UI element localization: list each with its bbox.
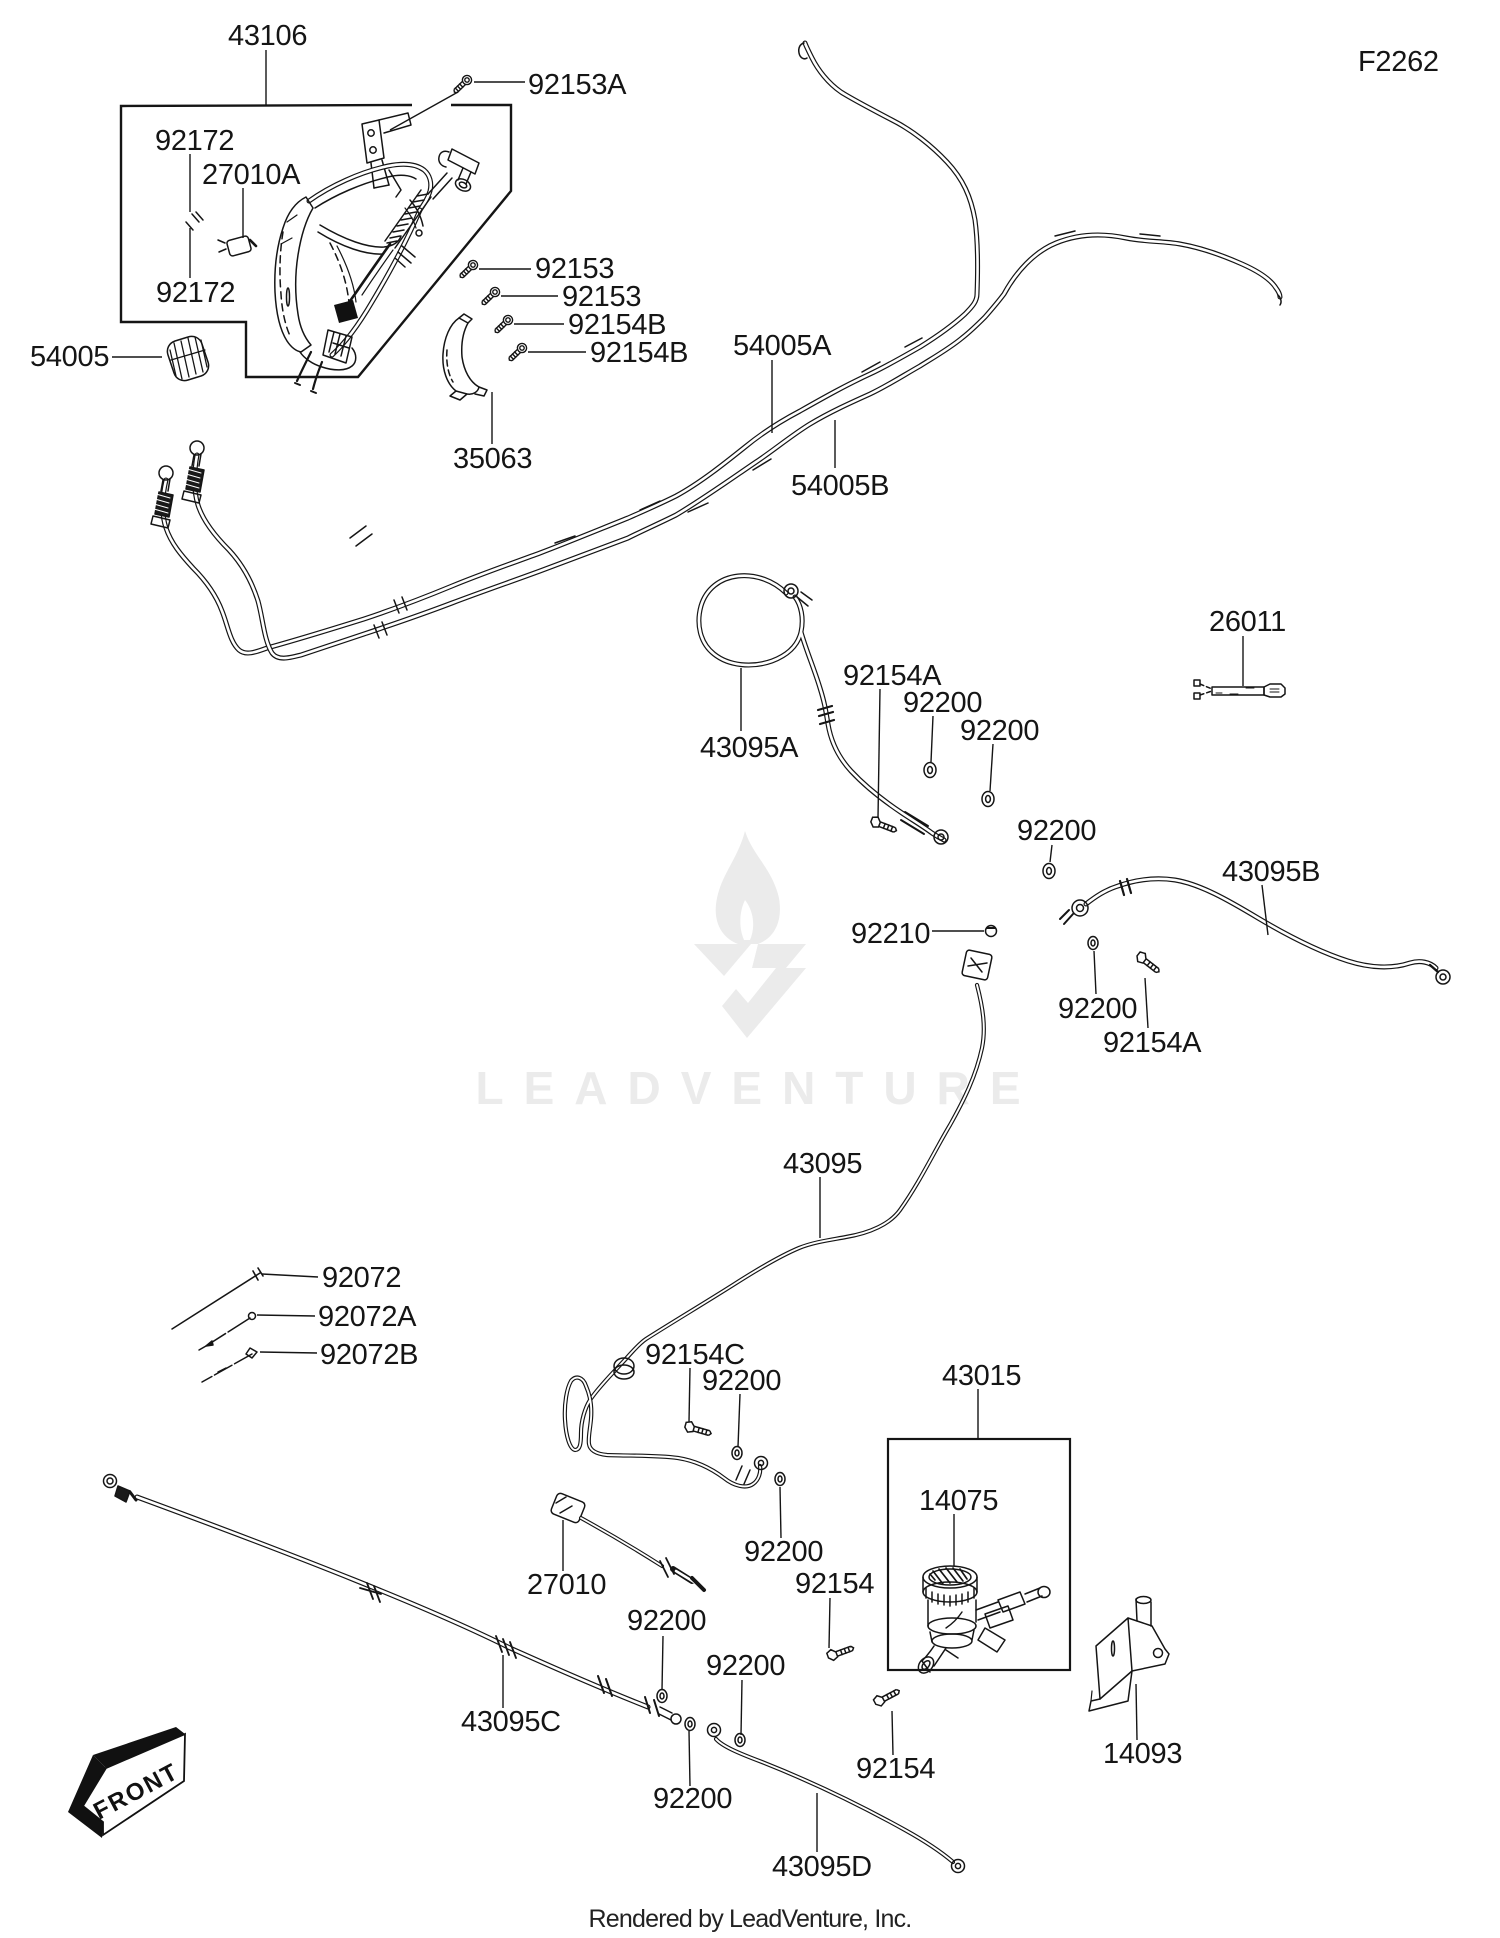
svg-text:92172: 92172	[155, 125, 234, 157]
svg-text:92154: 92154	[795, 1568, 874, 1600]
svg-text:92200: 92200	[627, 1605, 706, 1637]
svg-text:92072: 92072	[322, 1262, 401, 1294]
svg-text:92072B: 92072B	[320, 1339, 418, 1371]
svg-text:43095: 43095	[783, 1148, 862, 1180]
svg-text:LEADVENTURE: LEADVENTURE	[475, 1062, 1040, 1114]
svg-text:92200: 92200	[706, 1650, 785, 1682]
svg-text:92153A: 92153A	[528, 69, 627, 101]
svg-text:92154A: 92154A	[1103, 1027, 1202, 1059]
svg-text:54005B: 54005B	[791, 470, 889, 502]
svg-text:26011: 26011	[1209, 606, 1286, 638]
svg-text:54005: 54005	[30, 341, 109, 373]
svg-text:Rendered by LeadVenture, Inc.: Rendered by LeadVenture, Inc.	[589, 1905, 912, 1933]
svg-text:27010: 27010	[527, 1569, 606, 1601]
svg-text:92154: 92154	[856, 1753, 935, 1785]
svg-text:92200: 92200	[1058, 993, 1137, 1025]
svg-text:43095D: 43095D	[772, 1851, 872, 1883]
svg-text:92200: 92200	[960, 715, 1039, 747]
svg-text:43095A: 43095A	[700, 732, 799, 764]
svg-text:43095B: 43095B	[1222, 856, 1320, 888]
svg-text:54005A: 54005A	[733, 330, 832, 362]
svg-text:14093: 14093	[1103, 1738, 1182, 1770]
svg-text:92072A: 92072A	[318, 1301, 417, 1333]
svg-text:43106: 43106	[228, 20, 307, 52]
svg-text:14075: 14075	[919, 1485, 998, 1517]
svg-text:92200: 92200	[702, 1365, 781, 1397]
svg-text:27010A: 27010A	[202, 159, 301, 191]
svg-text:35063: 35063	[453, 443, 532, 475]
svg-text:92172: 92172	[156, 277, 235, 309]
svg-text:43015: 43015	[942, 1360, 1021, 1392]
svg-text:92210: 92210	[851, 918, 930, 950]
svg-text:92200: 92200	[653, 1783, 732, 1815]
svg-text:F2262: F2262	[1358, 46, 1439, 78]
svg-text:43095C: 43095C	[461, 1706, 561, 1738]
svg-text:92200: 92200	[744, 1536, 823, 1568]
svg-text:92154B: 92154B	[590, 337, 688, 369]
svg-text:92200: 92200	[1017, 815, 1096, 847]
